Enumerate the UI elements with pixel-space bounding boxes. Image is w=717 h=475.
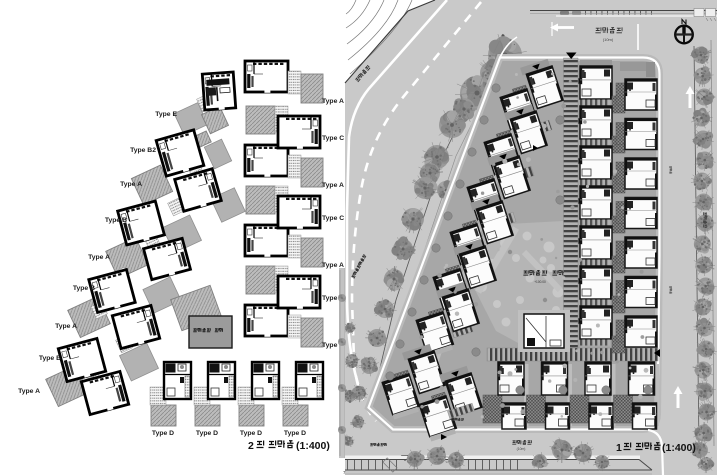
svg-text:+100.00: +100.00 bbox=[534, 280, 546, 284]
svg-text:(1:400): (1:400) bbox=[662, 442, 696, 454]
svg-text:Type D: Type D bbox=[240, 430, 262, 437]
svg-text:Type A: Type A bbox=[322, 182, 344, 189]
svg-text:Type A: Type A bbox=[88, 254, 110, 261]
svg-text:(10m): (10m) bbox=[517, 447, 526, 451]
svg-text:Type B: Type B bbox=[105, 217, 127, 224]
svg-text:Type A: Type A bbox=[120, 181, 142, 188]
svg-text:Type D: Type D bbox=[196, 430, 218, 437]
svg-text:Type C: Type C bbox=[322, 135, 344, 142]
svg-text:Type A: Type A bbox=[18, 388, 40, 395]
svg-text:Type A: Type A bbox=[322, 262, 344, 269]
svg-text:Type D: Type D bbox=[284, 430, 306, 437]
svg-text:Type D: Type D bbox=[152, 430, 174, 437]
svg-text:1: 1 bbox=[616, 442, 622, 454]
svg-text:Type A: Type A bbox=[322, 98, 344, 105]
svg-text:2: 2 bbox=[248, 440, 254, 452]
svg-text:Type A: Type A bbox=[55, 323, 77, 330]
svg-text:Type E: Type E bbox=[155, 111, 177, 118]
svg-text:Type B2: Type B2 bbox=[130, 147, 156, 154]
svg-text:(10m): (10m) bbox=[603, 37, 614, 42]
svg-text:Type C: Type C bbox=[322, 215, 344, 222]
svg-text:Type B: Type B bbox=[39, 355, 61, 362]
svg-text:Type B: Type B bbox=[73, 285, 95, 292]
svg-text:(1:400): (1:400) bbox=[296, 440, 330, 452]
